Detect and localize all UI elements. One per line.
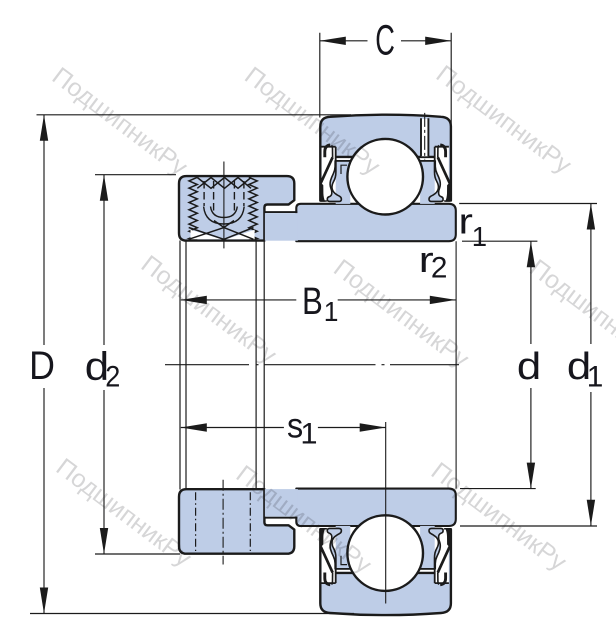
svg-text:1: 1 — [300, 418, 317, 450]
svg-text:2: 2 — [105, 360, 120, 393]
svg-text:1: 1 — [587, 361, 604, 394]
svg-text:1: 1 — [324, 297, 339, 328]
svg-text:r: r — [459, 202, 473, 242]
svg-text:1: 1 — [472, 221, 487, 252]
svg-text:D: D — [29, 344, 55, 388]
svg-text:C: C — [375, 15, 395, 64]
svg-text:d: d — [517, 344, 541, 387]
svg-text:B: B — [302, 281, 323, 322]
svg-text:2: 2 — [431, 251, 448, 284]
